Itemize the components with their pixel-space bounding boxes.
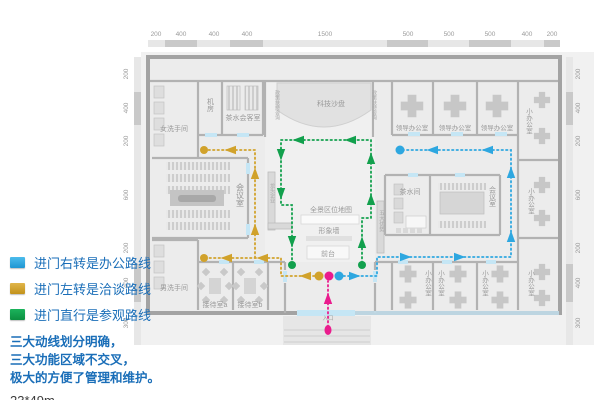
dim-right-6: 300 (575, 317, 582, 328)
label-leading-enterprise: 龙头企业 (269, 182, 275, 203)
label-panorama-map: 全景区位地图 (310, 205, 352, 214)
dim-right-2: 200 (575, 135, 582, 146)
label-image-wall: 形象墙 (319, 226, 340, 235)
dim-top-6: 500 (444, 31, 455, 38)
central-hall (265, 82, 384, 262)
legend-swatch-office (10, 257, 25, 268)
label-reception-b: 接待室b (238, 300, 263, 309)
note-line-3: 极大的方便了管理和维护。 (10, 369, 185, 387)
label-women-wc: 女洗手间 (160, 124, 188, 133)
label-meeting-room-left: 会议室 (236, 182, 245, 207)
label-five-advantages: 五大优势 (378, 210, 385, 234)
label-machine-room: 机房 (207, 97, 215, 113)
legend-notes: 三大动线划分明确， 三大功能区域不交叉， 极大的方便了管理和维护。 (10, 333, 185, 387)
dimension-strip-top: 200 400 400 400 1500 500 500 500 400 200 (148, 31, 560, 47)
legend-swatch-talk (10, 283, 25, 294)
legend-label-visit: 进门直行是参观路线 (34, 305, 151, 324)
dim-right-5: 400 (575, 277, 582, 288)
legend-item-talk: 进门左转是洽谈路线 (10, 275, 185, 301)
legend-item-visit: 进门直行是参观路线 (10, 301, 185, 327)
dim-left-2: 200 (123, 135, 130, 146)
dim-right-1: 400 (575, 102, 582, 113)
dim-right-3: 600 (575, 189, 582, 200)
building-size-label: 23*49m (10, 393, 185, 400)
dim-top-4: 1500 (318, 31, 333, 38)
label-meeting-room-right: 会议室 (489, 185, 497, 207)
note-line-1: 三大动线划分明确， (10, 333, 185, 351)
dim-right-4: 200 (575, 242, 582, 253)
label-leader-office-1: 领导办公室 (396, 123, 429, 132)
dim-left-0: 200 (123, 68, 130, 79)
label-tea-reception: 茶水会客室 (226, 113, 261, 122)
legend: 进门右转是办公路线 进门左转是洽谈路线 进门直行是参观路线 三大动线划分明确， … (10, 249, 185, 400)
label-tea-room: 茶水间 (400, 187, 421, 196)
dim-top-0: 200 (151, 31, 162, 38)
dim-top-2: 400 (209, 31, 220, 38)
legend-item-office: 进门右转是办公路线 (10, 249, 185, 275)
dim-top-9: 200 (547, 31, 558, 38)
dim-top-8: 400 (522, 31, 533, 38)
dim-right-0: 200 (575, 68, 582, 79)
label-policy-support-left: 政策扶持咨询 (274, 89, 280, 121)
floorplan-diagram: 200 400 400 400 1500 500 500 500 400 200… (0, 0, 600, 400)
label-leader-office-2: 领导办公室 (439, 123, 472, 132)
label-tech-sandbox: 科技沙盘 (317, 99, 345, 108)
legend-label-office: 进门右转是办公路线 (34, 253, 151, 272)
note-line-2: 三大功能区域不交叉， (10, 351, 185, 369)
legend-swatch-visit (10, 309, 25, 320)
label-reception-a: 接待室a (203, 300, 228, 309)
label-leader-office-3: 领导办公室 (481, 123, 514, 132)
dim-left-3: 600 (123, 189, 130, 200)
dim-top-5: 500 (403, 31, 414, 38)
legend-label-talk: 进门左转是洽谈路线 (34, 279, 151, 298)
label-front-desk: 前台 (321, 249, 335, 258)
label-policy-support-right: 政策扶持咨询 (371, 89, 377, 121)
dim-top-3: 400 (242, 31, 253, 38)
dim-top-1: 400 (176, 31, 187, 38)
dim-top-7: 500 (485, 31, 496, 38)
dim-left-1: 400 (123, 102, 130, 113)
